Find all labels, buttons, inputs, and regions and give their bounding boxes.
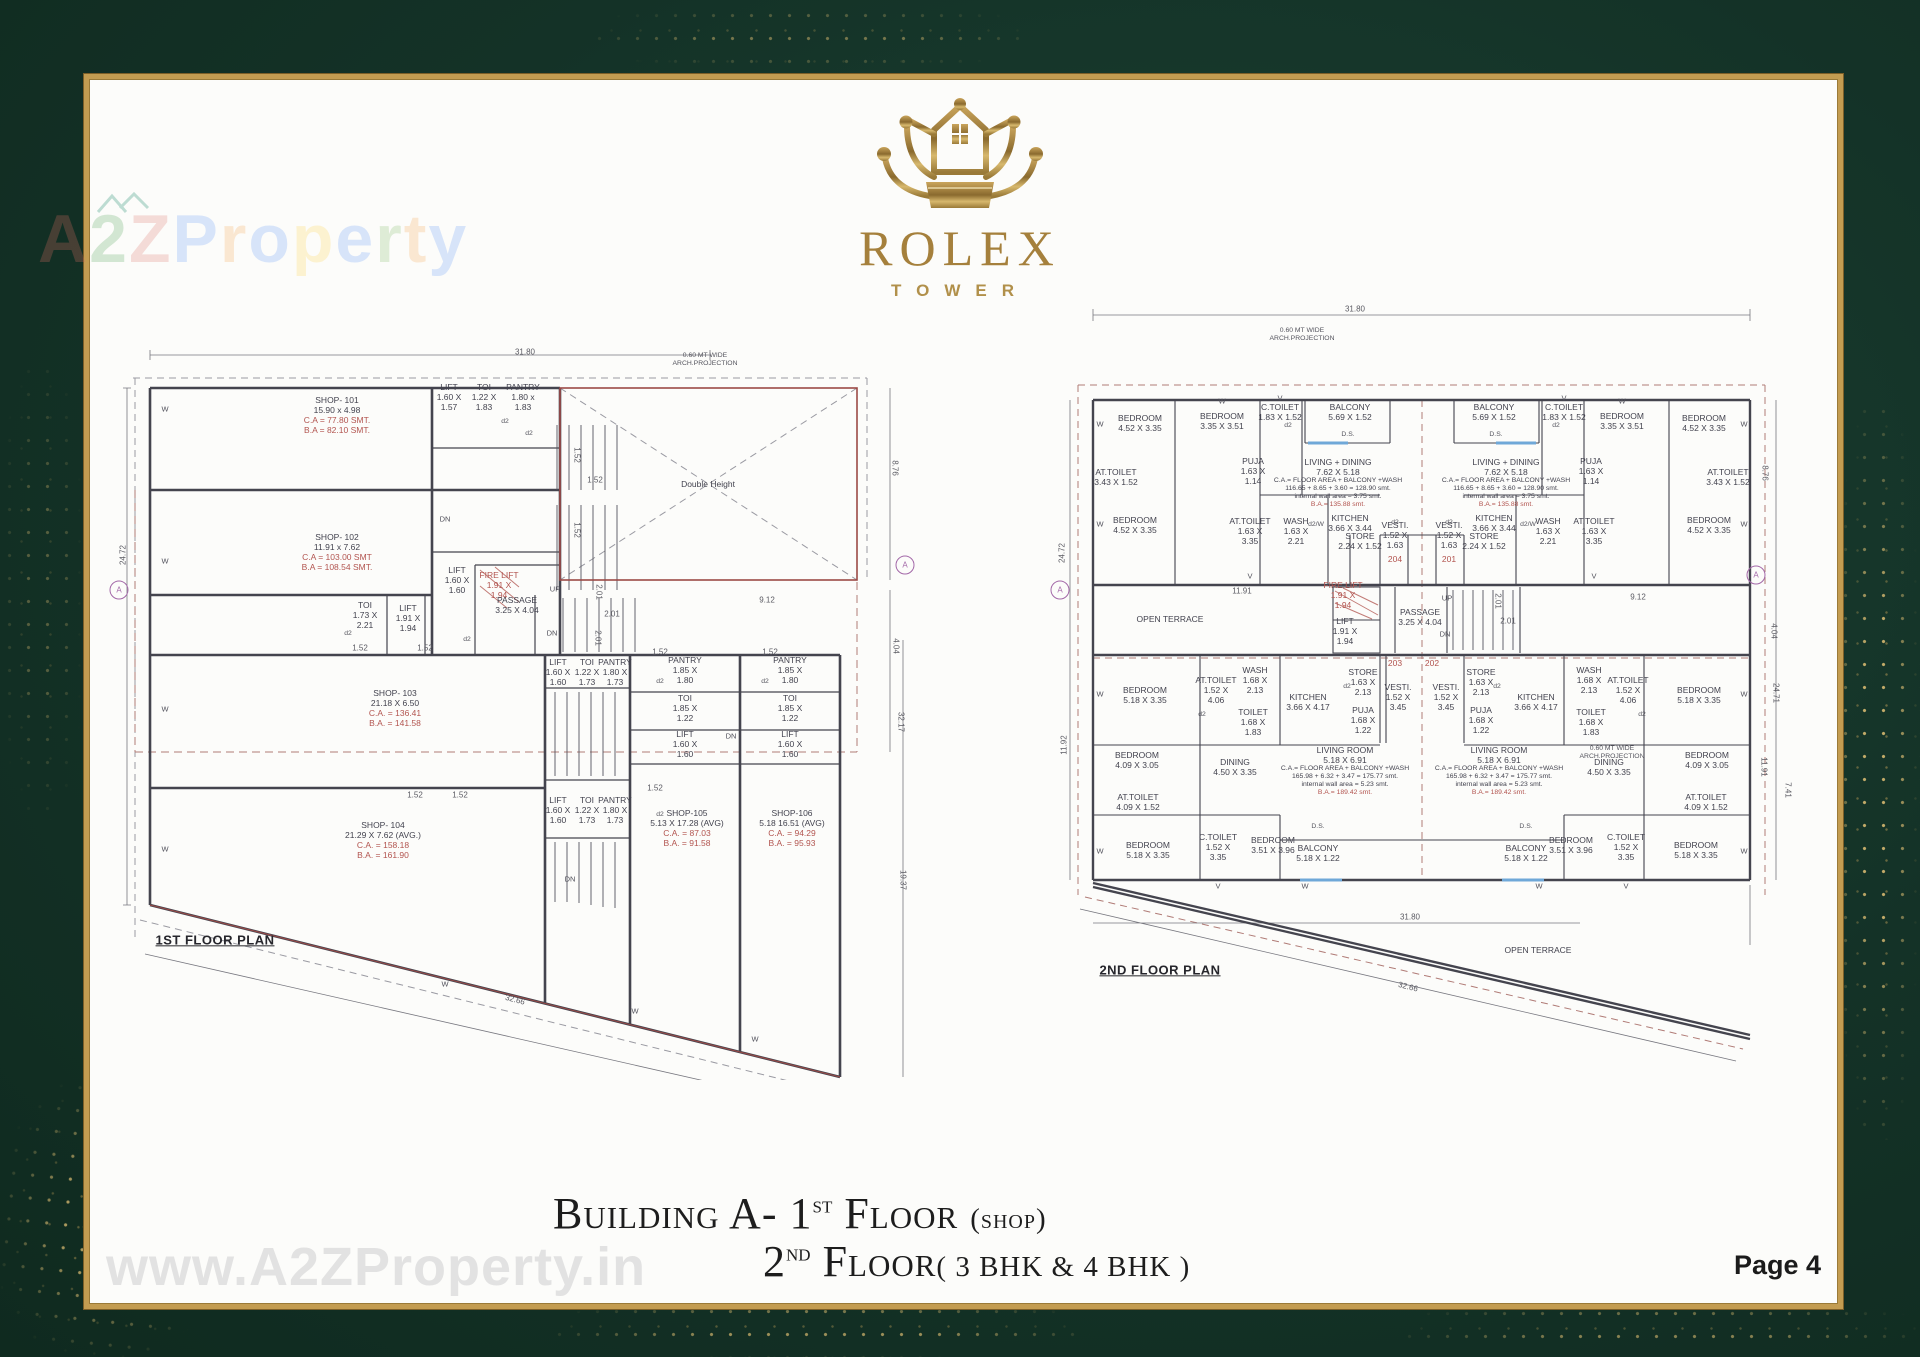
plan-label: 1.52 — [407, 790, 423, 799]
plan-label: W — [1740, 421, 1747, 430]
plan-label: PANTRY1.85 X1.80 — [773, 655, 807, 685]
plan-label: WASH1.63 X2.21 — [1535, 516, 1560, 546]
section-marker: A — [896, 556, 915, 575]
plan-label: d2 — [525, 430, 533, 438]
plan-label: 2.01 — [594, 584, 603, 600]
plan-label: D.S. — [1311, 823, 1324, 831]
plan-label: TOILET1.68 X1.83 — [1576, 707, 1606, 737]
plan-label: V — [1591, 573, 1596, 582]
plan-label: C.TOILET1.52 X3.35 — [1199, 832, 1237, 862]
plan-label: 8.76 — [890, 460, 899, 476]
plan-label: 1.52 — [452, 790, 468, 799]
plan-label: d2 — [1391, 519, 1399, 527]
watermark-letter: r — [220, 200, 248, 278]
plan-label: AT.TOILET3.43 X 1.52 — [1094, 467, 1137, 487]
brochure-page: ROLEX TOWER A2Z Property — [0, 0, 1920, 1357]
plan-label: W — [1096, 521, 1103, 530]
plan-label: AT.TOILET1.63 X3.35 — [1229, 516, 1270, 546]
plan-label: WASH1.68 X2.13 — [1576, 665, 1601, 695]
section-marker: A — [110, 581, 129, 600]
plan-label: d2 — [1198, 711, 1206, 719]
plan-label: W — [1301, 883, 1308, 892]
plan-label: BALCONY5.69 X 1.52 — [1472, 402, 1515, 422]
plan-label: 19.37 — [898, 870, 907, 890]
sparkle-decoration — [0, 360, 84, 820]
plan-label: 1.52 — [647, 783, 663, 792]
page-number: Page 4 — [1734, 1250, 1821, 1281]
crown-logo-icon — [860, 84, 1060, 212]
plan-label: SHOP- 10421.29 X 7.62 (AVG.)C.A. = 158.1… — [345, 820, 421, 860]
watermark-letter: y — [428, 200, 468, 278]
plan-label: BEDROOM4.52 X 3.35 — [1113, 515, 1157, 535]
logo-name: ROLEX — [810, 219, 1110, 277]
plan-label: W — [631, 1008, 638, 1017]
plan-label: BEDROOM4.52 X 3.35 — [1687, 515, 1731, 535]
plan-label: 32.17 — [896, 712, 905, 732]
plan-label: LIFT1.60 X1.60 — [445, 565, 470, 595]
plan-label: d2 — [344, 630, 352, 638]
plan-label: 24.71 — [1771, 683, 1780, 703]
plan-label: 9.12 — [759, 595, 775, 604]
plan-label: LIVING ROOM5.18 X 6.91C.A.= FLOOR AREA +… — [1281, 745, 1409, 797]
plan-label: TOI1.22 X1.73 — [575, 795, 600, 825]
plan-label: BEDROOM4.52 X 3.35 — [1682, 413, 1726, 433]
plan-label: 11.92 — [1059, 735, 1068, 754]
title-line1-tail: Floor — [832, 1189, 970, 1238]
plan-label: V — [1247, 573, 1252, 582]
watermark-letter: Z — [129, 200, 173, 278]
page-title-line2: 2nd Floor( 3 BHK & 4 BHK ) — [763, 1236, 1190, 1287]
second-floor-plan-labels: 31.800.60 MT WIDEARCH.PROJECTION8.769.12… — [1050, 295, 1810, 1085]
plan-label: DN — [440, 516, 451, 525]
plan-label: STORE1.63 X2.13 — [1348, 667, 1377, 697]
plan-label: VESTI.1.52 X3.45 — [1433, 682, 1460, 712]
plan-label: BEDROOM5.18 X 3.35 — [1677, 685, 1721, 705]
title-line1-main: Building A- 1 — [553, 1189, 812, 1238]
plan-label: PANTRY1.80 X1.73 — [598, 657, 632, 687]
plan-label: DINING4.50 X 3.35 — [1213, 757, 1256, 777]
plan-label: UP — [550, 586, 560, 595]
plan-label: OPEN TERRACE — [1137, 614, 1204, 624]
plan-label: 204 — [1388, 554, 1402, 564]
plan-label: d2/W — [1308, 521, 1324, 529]
second-floor-plan: 31.800.60 MT WIDEARCH.PROJECTION8.769.12… — [1050, 295, 1810, 1085]
plan-label: DN — [547, 630, 558, 639]
plan-label: UP — [1442, 595, 1452, 604]
section-marker: A — [1747, 566, 1766, 585]
title-line2-main: 2 — [763, 1237, 786, 1286]
plan-label: LIVING ROOM5.18 X 6.91C.A.= FLOOR AREA +… — [1435, 745, 1563, 797]
plan-label: AT.TOILET4.09 X 1.52 — [1684, 792, 1727, 812]
plan-label: 24.72 — [118, 545, 127, 565]
watermark-letter: p — [292, 200, 336, 278]
plan-label: 0.60 MT WIDEARCH.PROJECTION — [673, 352, 738, 368]
plan-label: 0.60 MT WIDEARCH.PROJECTION — [1270, 327, 1335, 343]
plan-label: AT.TOILET1.63 X3.35 — [1573, 516, 1614, 546]
plan-label: PANTRY1.80 x1.83 — [506, 382, 540, 412]
plan-label: d2 — [1445, 519, 1453, 527]
plan-label: BEDROOM4.09 X 3.05 — [1685, 750, 1729, 770]
watermark-letter: t — [404, 200, 429, 278]
plan-label: 8.76 — [1760, 465, 1769, 481]
plan-label: d2 — [656, 811, 664, 819]
plan-label: 4.04 — [891, 638, 900, 654]
section-marker: A — [1051, 581, 1070, 600]
plan-name-label: 1ST FLOOR PLAN — [156, 932, 275, 947]
plan-label: D.S. — [1341, 431, 1354, 439]
plan-label: d2 — [501, 418, 509, 426]
title-line2-tail: Floor — [811, 1237, 937, 1286]
plan-label: PANTRY1.85 X1.80 — [668, 655, 702, 685]
watermark-bottom: www.A2ZProperty.in — [106, 1236, 646, 1298]
plan-label: AT.TOILET3.43 X 1.52 — [1706, 467, 1749, 487]
plan-label: BEDROOM4.09 X 3.05 — [1115, 750, 1159, 770]
plan-label: KITCHEN3.66 X 4.17 — [1514, 692, 1557, 712]
plan-label: V — [1561, 395, 1566, 404]
plan-label: BEDROOM3.51 X 3.96 — [1549, 835, 1593, 855]
first-floor-plan: 31.800.60 MT WIDEARCH.PROJECTION8.769.12… — [115, 340, 915, 1080]
plan-label: W — [1740, 848, 1747, 857]
watermark-letter: A — [38, 200, 89, 278]
plan-label: LIFT1.60 X1.60 — [546, 795, 571, 825]
plan-label: d2 — [1552, 422, 1560, 430]
plan-label: W — [161, 558, 168, 567]
plan-label: PUJA1.63 X1.14 — [1241, 456, 1266, 486]
title-line2-sup: nd — [786, 1239, 811, 1266]
plan-label: PUJA1.68 X1.22 — [1469, 705, 1494, 735]
plan-label: W — [1096, 421, 1103, 430]
plan-label: WASH1.63 X2.21 — [1283, 516, 1308, 546]
plan-label: STORE1.63 X2.13 — [1466, 667, 1495, 697]
plan-label: LIFT1.91 X1.94 — [396, 603, 421, 633]
plan-label: LIVING + DINING7.62 X 5.18C.A.= FLOOR AR… — [1274, 457, 1402, 509]
plan-label: SHOP-1065.18 16.51 (AVG)C.A. = 94.29B.A.… — [759, 808, 825, 848]
plan-label: C.TOILET1.83 X 1.52 — [1258, 402, 1301, 422]
first-floor-plan-labels: 31.800.60 MT WIDEARCH.PROJECTION8.769.12… — [115, 340, 915, 1080]
plan-label: SHOP- 10321.18 X 6.50C.A. = 136.41B.A. =… — [369, 688, 421, 728]
plan-label: 1.52 — [417, 643, 433, 652]
plan-label: d2 — [761, 678, 769, 686]
plan-label: 32.66 — [1397, 980, 1419, 994]
plan-label: 2.01 — [593, 630, 602, 646]
plan-label: 11.91 — [1759, 757, 1768, 776]
plan-label: DINING4.50 X 3.35 — [1587, 757, 1630, 777]
plan-label: C.TOILET1.83 X 1.52 — [1542, 402, 1585, 422]
plan-label: 1.52 — [572, 522, 581, 538]
plan-label: 11.91 — [1232, 586, 1251, 595]
plan-label: BEDROOM5.18 X 3.35 — [1123, 685, 1167, 705]
plan-label: 202 — [1425, 658, 1439, 668]
plan-label: W — [1096, 691, 1103, 700]
plan-label: PASSAGE3.25 X 4.04 — [1398, 607, 1441, 627]
plan-label: 2.01 — [604, 609, 620, 618]
plan-label: D.S. — [1489, 431, 1502, 439]
plan-label: TOI1.73 X2.21 — [353, 600, 378, 630]
plan-label: TOI1.85 X1.22 — [673, 693, 698, 723]
plan-label: DN — [726, 733, 737, 742]
plan-label: W — [1096, 848, 1103, 857]
plan-label: V — [1277, 395, 1282, 404]
plan-label: W — [161, 706, 168, 715]
plan-label: BALCONY5.18 X 1.22 — [1504, 843, 1547, 863]
plan-label: 203 — [1388, 658, 1402, 668]
plan-label: 1.52 — [652, 647, 668, 656]
title-line1-paren: (shop) — [970, 1203, 1046, 1235]
plan-label: TOI1.85 X1.22 — [778, 693, 803, 723]
plan-label: W — [1218, 398, 1225, 407]
plan-label: STORE2.24 X 1.52 — [1462, 531, 1505, 551]
plan-label: BEDROOM4.52 X 3.35 — [1118, 413, 1162, 433]
plan-label: 201 — [1442, 554, 1456, 564]
plan-label: PUJA1.63 X1.14 — [1579, 456, 1604, 486]
watermark-letter: o — [248, 200, 292, 278]
sparkle-decoration — [1836, 400, 1920, 1140]
watermark-letter: e — [335, 200, 375, 278]
plan-label: d2 — [656, 678, 664, 686]
plan-label: AT.TOILET1.52 X4.06 — [1195, 675, 1236, 705]
plan-label: FIRE LIFT1.91 X1.94 — [1323, 580, 1362, 610]
plan-label: AT.TOILET1.52 X4.06 — [1607, 675, 1648, 705]
plan-label: DN — [565, 876, 576, 885]
plan-label: LIFT1.60 X1.60 — [673, 729, 698, 759]
rolex-tower-logo: ROLEX TOWER — [810, 84, 1110, 301]
plan-label: d2 — [463, 636, 471, 644]
plan-name-label: 2ND FLOOR PLAN — [1099, 962, 1220, 977]
plan-label: LIFT1.60 X1.60 — [546, 657, 571, 687]
plan-label: OPEN TERRACE — [1505, 945, 1572, 955]
plan-label: STORE2.24 X 1.52 — [1338, 531, 1381, 551]
plan-label: 1.52 — [352, 643, 368, 652]
plan-label: BEDROOM5.18 X 3.35 — [1674, 840, 1718, 860]
plan-label: D.S. — [1519, 823, 1532, 831]
plan-label: BALCONY5.69 X 1.52 — [1328, 402, 1371, 422]
watermark-letter: 2 — [89, 200, 129, 278]
plan-label: TOILET1.68 X1.83 — [1238, 707, 1268, 737]
plan-label: d2 — [1284, 422, 1292, 430]
plan-label: d2 — [1638, 711, 1646, 719]
plan-label: W — [1535, 883, 1542, 892]
plan-label: W — [1618, 398, 1625, 407]
plan-label: LIVING + DINING7.62 X 5.18C.A.= FLOOR AR… — [1442, 457, 1570, 509]
page-title-line1: Building A- 1st Floor (shop) — [553, 1188, 1047, 1239]
sparkle-decoration — [1400, 1302, 1920, 1357]
plan-label: BEDROOM3.51 X 3.96 — [1251, 835, 1295, 855]
title-line2-paren: ( 3 BHK & 4 BHK ) — [936, 1251, 1190, 1283]
plan-label: 1.52 — [587, 475, 603, 484]
plan-label: LIFT1.60 X1.60 — [778, 729, 803, 759]
plan-label: PUJA1.68 X1.22 — [1351, 705, 1376, 735]
watermark-letter: r — [375, 200, 403, 278]
plan-label: LIFT1.60 X1.57 — [437, 382, 462, 412]
plan-label: BEDROOM3.35 X 3.51 — [1200, 411, 1244, 431]
plan-label: 2.01 — [1500, 616, 1516, 625]
plan-label: W — [1740, 521, 1747, 530]
plan-label: 24.72 — [1057, 543, 1066, 563]
plan-label: 4.04 — [1769, 623, 1778, 639]
plan-label: 9.12 — [1630, 592, 1646, 601]
plan-label: VESTI.1.52 X3.45 — [1385, 682, 1412, 712]
plan-label: W — [441, 981, 448, 990]
watermark-letter: P — [172, 200, 219, 278]
plan-label: d2 — [1343, 683, 1351, 691]
plan-label: 1.52 — [572, 447, 581, 463]
plan-label: 2.01 — [1493, 593, 1502, 609]
plan-label: d2/W — [1520, 521, 1536, 529]
plan-label: V — [1215, 883, 1220, 892]
plan-label: BEDROOM5.18 X 3.35 — [1126, 840, 1170, 860]
plan-label: BEDROOM3.35 X 3.51 — [1600, 411, 1644, 431]
plan-label: BALCONY5.18 X 1.22 — [1296, 843, 1339, 863]
plan-label: WASH1.68 X2.13 — [1242, 665, 1267, 695]
plan-label: KITCHEN3.66 X 4.17 — [1286, 692, 1329, 712]
plan-label: TOI1.22 X1.73 — [575, 657, 600, 687]
plan-label: W — [1740, 691, 1747, 700]
plan-label: 31.80 — [1345, 304, 1365, 313]
sparkle-decoration — [590, 4, 1030, 70]
plan-label: 7.41 — [1783, 782, 1792, 798]
plan-label: 31.80 — [1400, 912, 1420, 921]
plan-label: TOI1.22 X1.83 — [472, 382, 497, 412]
plan-label: AT.TOILET4.09 X 1.52 — [1116, 792, 1159, 812]
plan-label: 31.80 — [515, 347, 535, 356]
watermark-corner: A2Z Property — [38, 200, 468, 278]
plan-label: d2 — [1493, 683, 1501, 691]
plan-label: PASSAGE3.25 X 4.04 — [495, 595, 538, 615]
plan-label: W — [751, 1036, 758, 1045]
plan-label: PANTRY1.80 X1.73 — [598, 795, 632, 825]
plan-label: DN — [1440, 631, 1451, 640]
plan-label: 32.66 — [504, 993, 526, 1007]
title-line1-sup: st — [812, 1191, 832, 1218]
plan-label: C.TOILET1.52 X3.35 — [1607, 832, 1645, 862]
plan-label: W — [161, 846, 168, 855]
plan-label: LIFT1.91 X1.94 — [1333, 616, 1358, 646]
plan-label: SHOP- 10211.91 x 7.62C.A = 103.00 SMTB.A… — [302, 532, 373, 572]
plan-label: V — [1623, 883, 1628, 892]
plan-label: W — [161, 406, 168, 415]
plan-label: SHOP- 10115.90 x 4.98C.A = 77.80 SMT.B.A… — [304, 395, 370, 435]
plan-label: Double Height — [681, 479, 735, 489]
